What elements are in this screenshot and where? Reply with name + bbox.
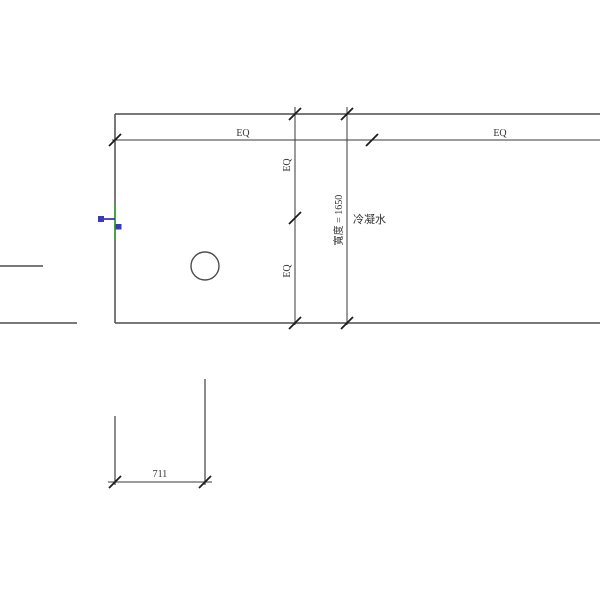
eq-label-top-left: EQ — [236, 128, 250, 139]
dimension-ticks — [109, 108, 378, 488]
dimension-lines — [108, 107, 600, 482]
width-dimension-label: 寬度 = 1650 — [332, 195, 345, 246]
connector-blue-fills — [98, 216, 122, 230]
eq-label-side-upper: EQ — [282, 158, 293, 172]
bottom-dimension-label: 711 — [153, 469, 168, 480]
model-geometry — [0, 114, 600, 485]
cad-drawing: EQ EQ EQ EQ 寬度 = 1650 冷凝水 711 — [0, 0, 600, 600]
connector-node-square — [116, 224, 122, 230]
annotation-text: EQ EQ EQ EQ 寬度 = 1650 冷凝水 711 — [153, 128, 508, 480]
eq-label-top-right: EQ — [493, 128, 507, 139]
eq-label-side-lower: EQ — [282, 264, 293, 278]
connector-blue-parts — [98, 216, 122, 230]
connector-symbol — [98, 204, 122, 240]
drawing-canvas: EQ EQ EQ EQ 寬度 = 1650 冷凝水 711 — [0, 0, 600, 600]
circular-opening — [191, 252, 219, 280]
flow-arrow-head — [98, 216, 104, 222]
condensate-water-label: 冷凝水 — [353, 212, 386, 226]
